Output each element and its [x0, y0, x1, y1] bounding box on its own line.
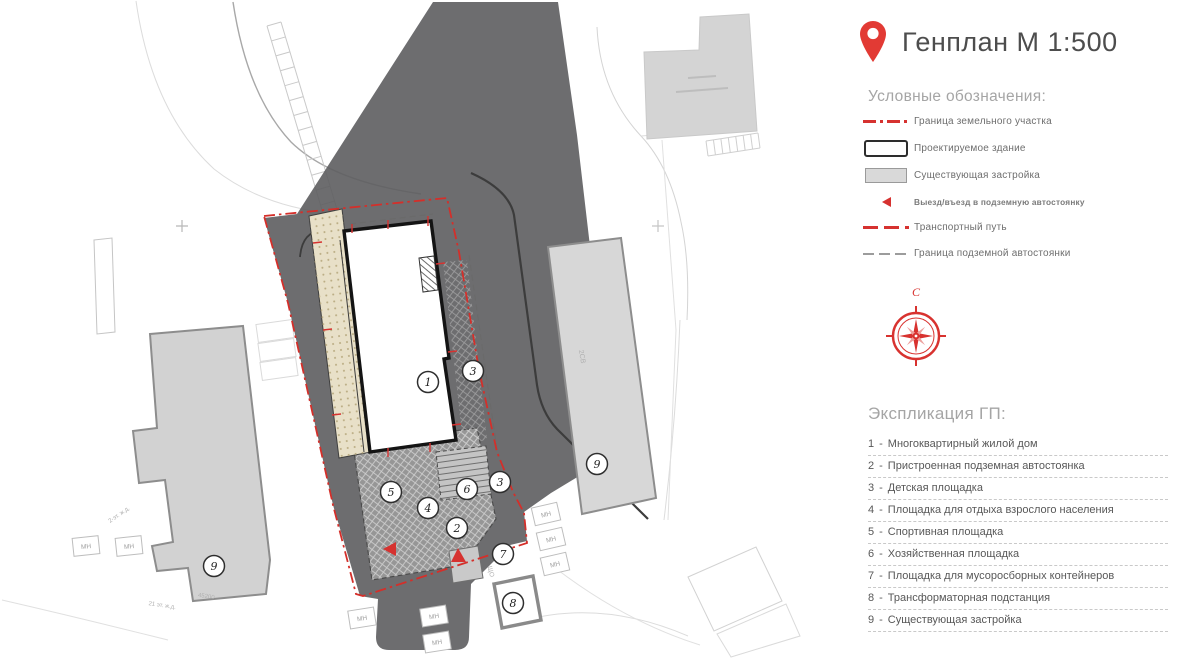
number-marker-label: 8 — [510, 597, 517, 610]
dim-tick — [452, 424, 461, 425]
explication-item-number: 6 — [868, 548, 874, 560]
ladder-rung — [280, 67, 294, 71]
compass-graphic — [886, 306, 946, 366]
explication-item-separator: - — [879, 592, 883, 604]
legend-item: Проектируемое здание — [858, 140, 1188, 157]
number-marker-label: 9 — [594, 458, 601, 471]
explication-item-separator: - — [879, 526, 883, 538]
mn-parcel-box: МН — [115, 536, 143, 557]
number-marker-2: 2 — [447, 518, 468, 539]
explication-item-number: 3 — [868, 482, 874, 494]
number-marker-label: 6 — [464, 483, 471, 496]
mn-parcel-label: МН — [81, 543, 92, 551]
number-marker-9: 9 — [587, 454, 608, 475]
ladder-rung — [289, 97, 303, 101]
explication-item-label: Существующая застройка — [888, 614, 1022, 626]
ladder-rung — [751, 134, 753, 149]
explication-item: 7 - Площадка для мусоросборных контейнер… — [868, 566, 1168, 588]
legend-symbol-icon — [863, 253, 909, 255]
mn-parcel-box: МН — [540, 552, 569, 575]
dim-tick — [323, 329, 332, 330]
explication-item-separator: - — [879, 570, 883, 582]
ladder-rung — [285, 82, 299, 86]
number-marker-label: 1 — [425, 376, 432, 389]
legend-item-label: Транспортный путь — [914, 222, 1007, 233]
page-title: Генплан М 1:500 — [902, 27, 1118, 58]
ladder-rung — [298, 126, 312, 130]
map-pin-icon — [858, 20, 888, 64]
ladder-rung — [267, 22, 281, 26]
narrow-building — [94, 238, 115, 334]
number-marker-3: 3 — [490, 472, 511, 493]
legend-symbol — [858, 197, 914, 207]
explication-item-label: Площадка для мусоросборных контейнеров — [888, 570, 1114, 582]
explication-item-number: 9 — [868, 614, 874, 626]
legend-panel: Генплан М 1:500 Условные обозначения: Гр… — [852, 0, 1192, 658]
dim-tick — [436, 263, 445, 264]
dim-tick — [448, 351, 457, 352]
ladder-rung — [721, 139, 723, 154]
explication-item-number: 2 — [868, 460, 874, 472]
legend-item: Существующая застройка — [858, 168, 1188, 183]
mn-parcel-box: МН — [536, 527, 565, 550]
ladder-rung — [743, 135, 745, 150]
ladder-rung — [758, 133, 760, 148]
explication-item: 6 - Хозяйственная площадка — [868, 544, 1168, 566]
tiny-annotation: ЩО — [486, 565, 495, 578]
screenshot-root: МНМНМНМНМНМНМНМН 2СВЩО452002-эт. ж.д.21 … — [0, 0, 1200, 658]
cross-marker — [652, 220, 664, 232]
explication-item: 3 - Детская площадка — [868, 478, 1168, 500]
explication-item-number: 1 — [868, 438, 874, 450]
number-marker-4: 4 — [418, 498, 439, 519]
legend-item: Граница земельного участка — [858, 114, 1188, 129]
number-marker-label: 2 — [453, 522, 461, 535]
explication-item-label: Детская площадка — [888, 482, 983, 494]
explication-item-number: 5 — [868, 526, 874, 538]
explication-item: 5 - Спортивная площадка — [868, 522, 1168, 544]
legend-symbol-icon — [864, 140, 908, 157]
plan-title-row: Генплан М 1:500 — [858, 20, 1118, 64]
number-marker-label: 4 — [424, 502, 432, 515]
legend-item-label: Проектируемое здание — [914, 143, 1026, 154]
ladder-rung — [728, 138, 730, 153]
mn-parcel-box: МН — [423, 631, 451, 653]
legend-item: Транспортный путь — [858, 220, 1188, 235]
ladder-rung — [736, 136, 738, 151]
explication-item: 1 - Многоквартирный жилой дом — [868, 434, 1168, 456]
ladder-rung — [713, 140, 715, 155]
explication-list: 1 - Многоквартирный жилой дом 2 - Пристр… — [868, 434, 1168, 632]
ladder-rung — [303, 141, 317, 145]
trash-area — [449, 546, 483, 583]
mn-parcel-label: МН — [124, 543, 135, 551]
explication-item-label: Спортивная площадка — [888, 526, 1004, 538]
dim-tick — [313, 242, 322, 243]
explication-item: 2 - Пристроенная подземная автостоянка — [868, 456, 1168, 478]
legend-symbol — [858, 120, 914, 123]
explication-item-number: 7 — [868, 570, 874, 582]
number-marker-label: 7 — [500, 548, 507, 561]
explication-item-number: 8 — [868, 592, 874, 604]
number-marker-9: 9 — [204, 556, 225, 577]
explication-item-label: Многоквартирный жилой дом — [888, 438, 1038, 450]
explication-item: 4 - Площадка для отдыха взрослого населе… — [868, 500, 1168, 522]
legend-symbol-icon — [863, 120, 909, 123]
explication-item-label: Трансформаторная подстанция — [888, 592, 1050, 604]
cross-marker — [176, 220, 188, 232]
road-line — [545, 560, 700, 645]
legend-item-label: Граница подземной автостоянки — [914, 248, 1071, 259]
tiny-annotation: 21 эт. ж.д. — [148, 601, 176, 611]
compass-rose: С — [878, 284, 954, 381]
mn-parcel-box: МН — [531, 502, 560, 525]
existing-building-left — [133, 326, 270, 601]
explication-item-number: 4 — [868, 504, 874, 516]
tiny-annotation: 2-эт. ж.д. — [108, 505, 132, 524]
explication-item-separator: - — [879, 548, 883, 560]
road-line — [518, 613, 688, 636]
ladder-rung — [706, 141, 708, 156]
ladder-rung — [271, 37, 285, 41]
compass-north-label: С — [912, 285, 921, 299]
number-marker-5: 5 — [381, 482, 402, 503]
explication-item: 8 - Трансформаторная подстанция — [868, 588, 1168, 610]
legend-item-label: Выезд/въезд в подземную автостоянку — [914, 197, 1085, 207]
legend-symbol — [858, 226, 914, 229]
legend-symbol-icon — [863, 226, 909, 229]
parcel-line — [662, 140, 676, 520]
number-marker-label: 9 — [211, 560, 218, 573]
explication-item-label: Хозяйственная площадка — [888, 548, 1019, 560]
legend-item-label: Граница земельного участка — [914, 116, 1052, 127]
legend-symbol-icon — [882, 197, 891, 207]
legend-symbol — [858, 168, 914, 183]
number-marker-7: 7 — [493, 544, 514, 565]
number-marker-label: 3 — [497, 476, 504, 489]
explication-item-separator: - — [879, 504, 883, 516]
legend-heading: Условные обозначения: — [868, 88, 1046, 106]
number-marker-1: 1 — [418, 372, 439, 393]
legend-item: Выезд/въезд в подземную автостоянку — [858, 194, 1188, 209]
mn-parcel-box: МН — [72, 536, 100, 557]
mn-parcel-box: МН — [348, 607, 376, 629]
site-plan: МНМНМНМНМНМНМНМН 2СВЩО452002-эт. ж.д.21 … — [0, 0, 852, 658]
legend-symbol — [858, 253, 914, 255]
number-marker-3: 3 — [463, 361, 484, 382]
legend-items: Граница земельного участка Проектируемое… — [858, 114, 1188, 272]
legend-symbol — [858, 140, 914, 157]
number-marker-label: 3 — [470, 365, 477, 378]
explication-item-separator: - — [879, 438, 883, 450]
number-marker-8: 8 — [503, 593, 524, 614]
legend-item-label: Существующая застройка — [914, 170, 1040, 181]
explication-item-label: Площадка для отдыха взрослого населения — [888, 504, 1114, 516]
explication-item-label: Пристроенная подземная автостоянка — [888, 460, 1085, 472]
dim-tick — [332, 414, 341, 415]
mn-parcel-box: МН — [420, 605, 448, 627]
explication-heading: Экспликация ГП: — [868, 404, 1006, 424]
ladder-rung — [276, 52, 290, 56]
legend-symbol-icon — [865, 168, 907, 183]
explication-item-separator: - — [879, 482, 883, 494]
explication-item-separator: - — [879, 460, 883, 472]
road-line — [2, 600, 168, 640]
ladder-rung — [294, 112, 308, 116]
number-marker-label: 5 — [388, 486, 395, 499]
explication-item-separator: - — [879, 614, 883, 626]
explication-item: 9 - Существующая застройка — [868, 610, 1168, 632]
road-line — [136, 1, 336, 214]
number-marker-6: 6 — [457, 479, 478, 500]
legend-item: Граница подземной автостоянки — [858, 246, 1188, 261]
